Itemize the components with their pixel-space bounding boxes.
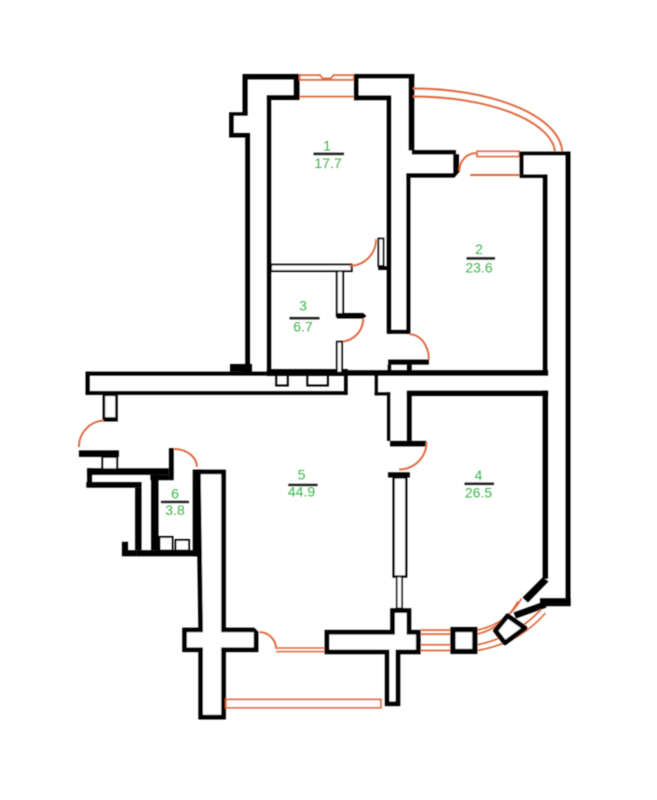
svg-text:4: 4 — [475, 467, 483, 483]
svg-text:2: 2 — [475, 241, 483, 257]
svg-text:3.8: 3.8 — [165, 502, 185, 518]
svg-text:26.5: 26.5 — [465, 484, 492, 500]
svg-text:44.9: 44.9 — [288, 484, 315, 500]
svg-text:3: 3 — [299, 298, 307, 314]
svg-text:17.7: 17.7 — [314, 155, 341, 171]
svg-text:23.6: 23.6 — [465, 260, 492, 276]
svg-text:5: 5 — [298, 467, 306, 483]
svg-text:6.7: 6.7 — [293, 319, 313, 335]
svg-text:6: 6 — [171, 485, 179, 501]
svg-text:1: 1 — [323, 138, 331, 154]
